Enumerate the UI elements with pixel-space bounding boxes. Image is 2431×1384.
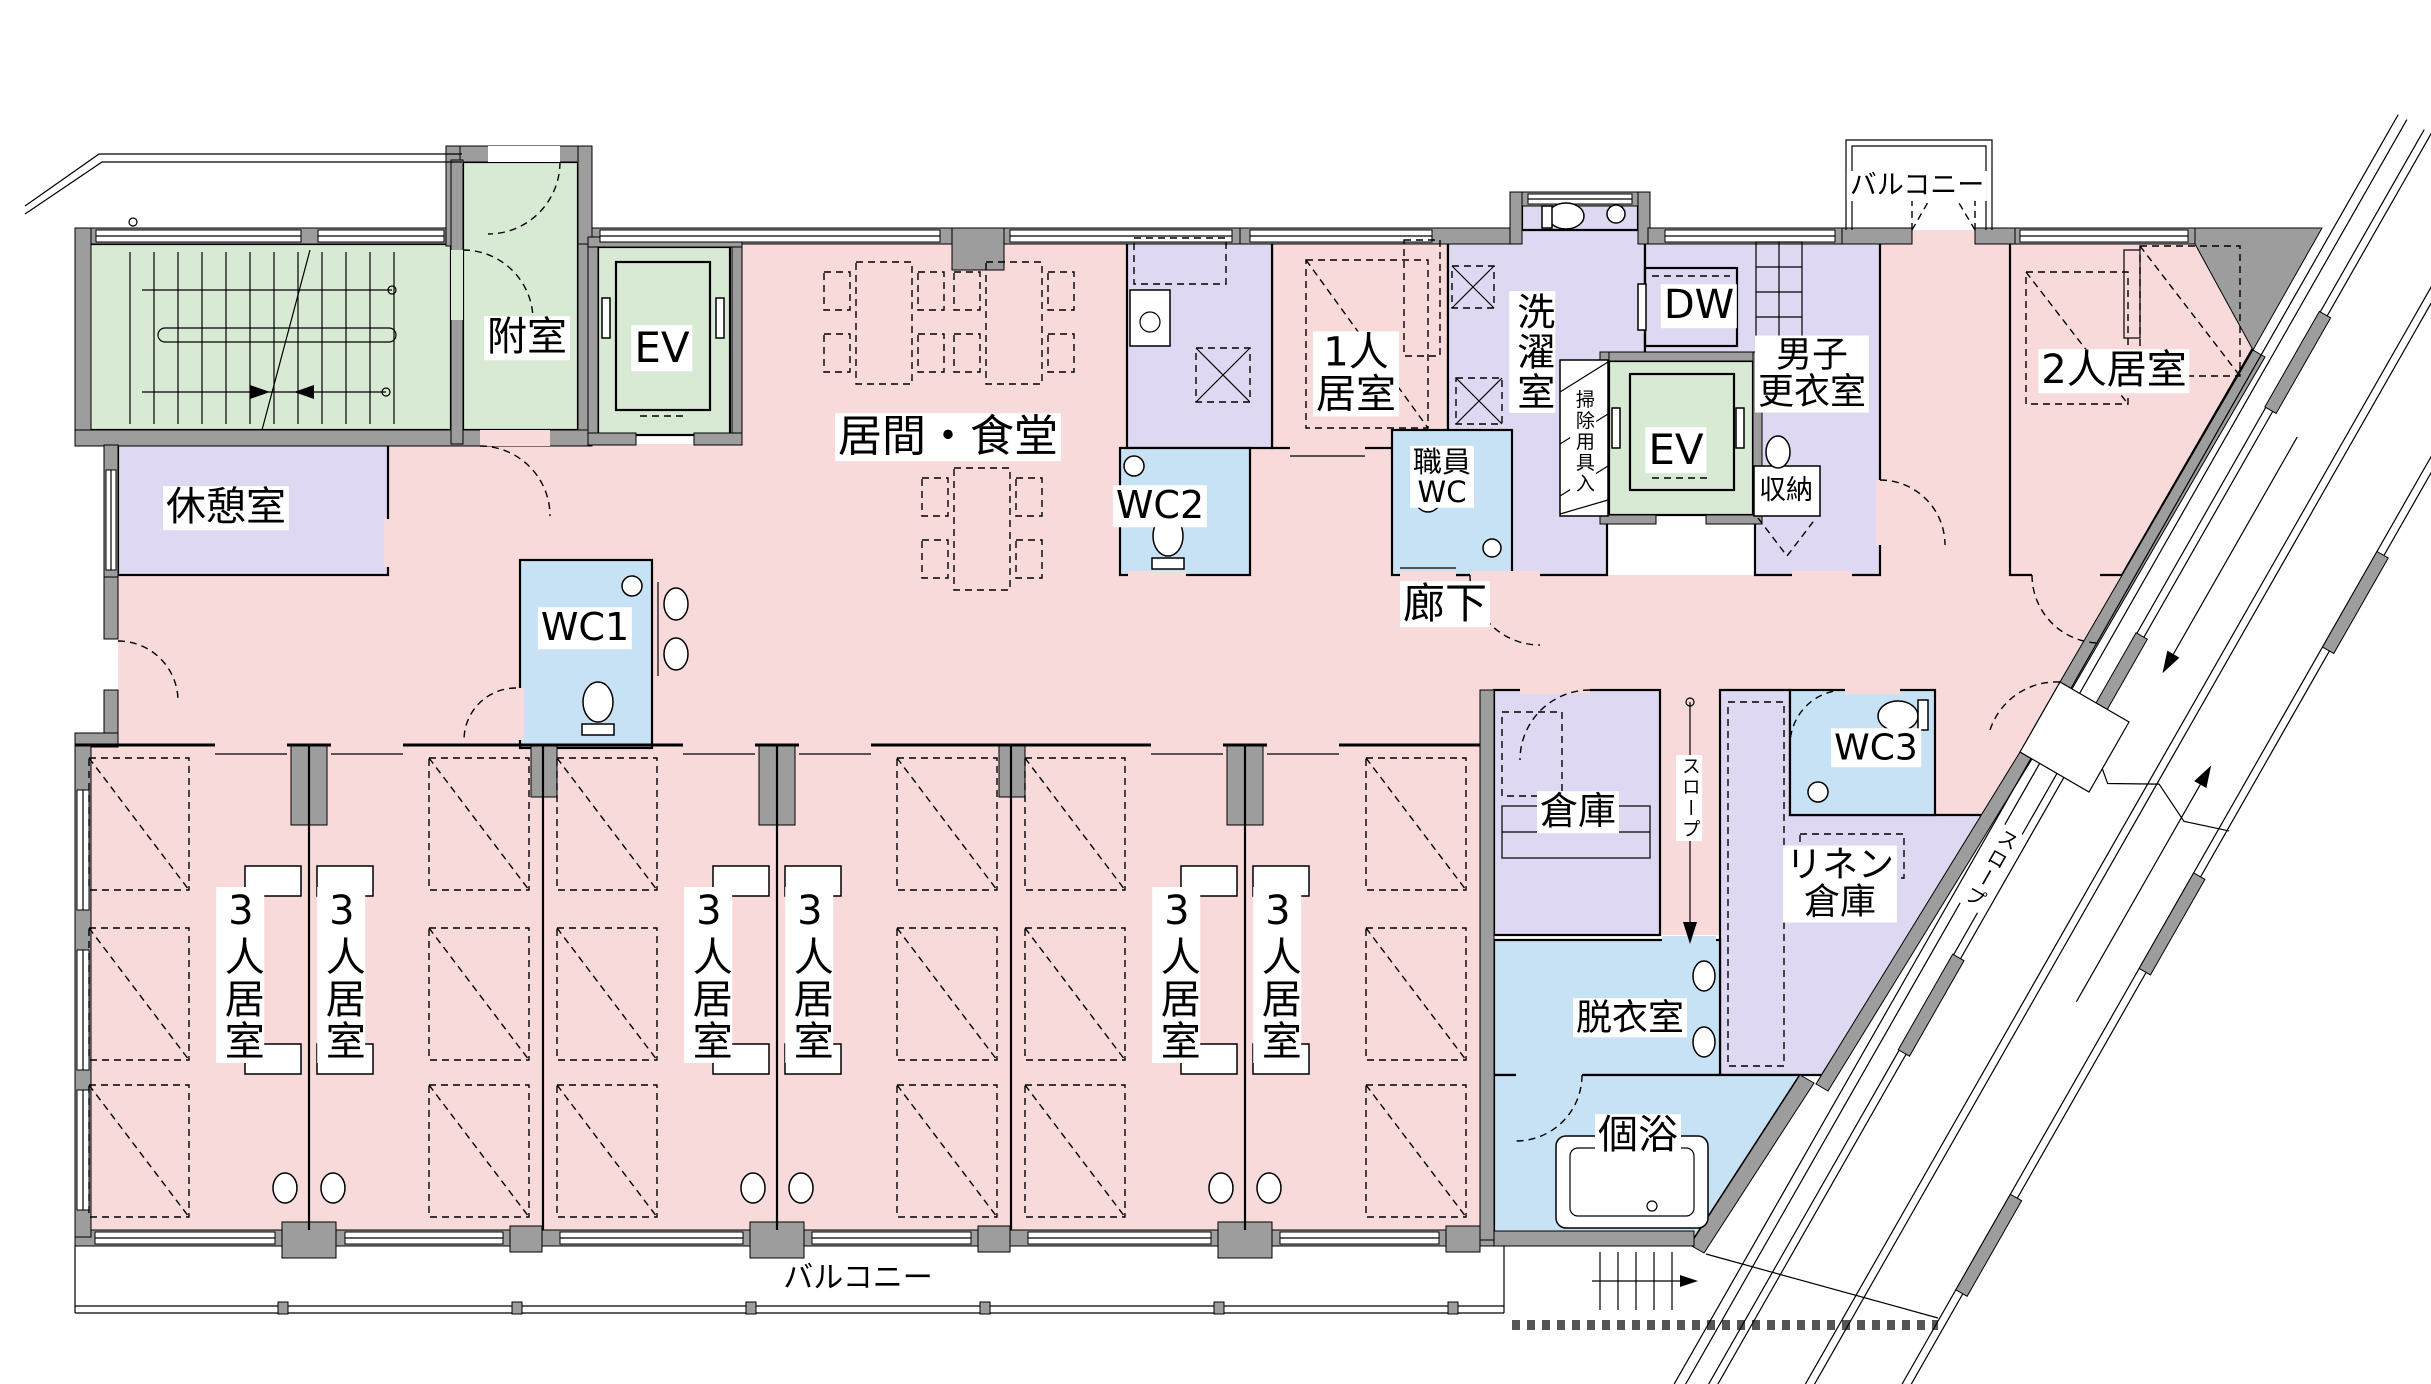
label-living-dining: 居間・食堂 [835, 413, 1061, 461]
label-room-3p-5: 3人居室 [1152, 887, 1200, 1063]
label-room-3p-3: 3人居室 [684, 887, 732, 1063]
label-room-3p-2: 3人居室 [317, 887, 365, 1063]
label-wc1: WC1 [538, 607, 632, 649]
label-slope-outer: スロープ [1956, 822, 2024, 913]
label-room-3p-4: 3人居室 [785, 887, 833, 1063]
label-room-1p: 1人 居室 [1313, 331, 1399, 416]
label-kyukeishitsu: 休憩室 [163, 486, 289, 530]
label-fushitsu: 附室 [484, 316, 570, 360]
label-balcony-north: バルコニー [1847, 171, 1987, 201]
floor-plan: 附室EV居間・食堂休憩室WC1WC21人 居室職員 WC洗濯室DW掃除用具入EV… [0, 0, 2431, 1384]
label-ev-west: EV [631, 325, 692, 371]
label-laundry: 洗濯室 [1509, 291, 1555, 413]
label-souko: 倉庫 [1537, 791, 1619, 833]
label-wc2: WC2 [1113, 485, 1207, 527]
label-shuno: 収納 [1756, 476, 1816, 506]
label-slope-inner: スロープ [1676, 755, 1702, 841]
label-cleaning-closet: 掃除用具入 [1570, 389, 1596, 496]
label-datsuishitsu: 脱衣室 [1573, 998, 1687, 1037]
label-staff-wc: 職員 WC [1410, 446, 1474, 508]
labels-layer: 附室EV居間・食堂休憩室WC1WC21人 居室職員 WC洗濯室DW掃除用具入EV… [0, 0, 2431, 1384]
label-room-2p: 2人居室 [2038, 349, 2189, 393]
label-linen-souko: リネン 倉庫 [1783, 846, 1897, 923]
label-room-3p-1: 3人居室 [216, 887, 264, 1063]
label-rouka: 廊下 [1400, 581, 1490, 627]
label-room-3p-6: 3人居室 [1253, 887, 1301, 1063]
label-dw: DW [1661, 284, 1737, 328]
label-koyoku: 個浴 [1595, 1114, 1681, 1158]
label-balcony-south: バルコニー [780, 1261, 935, 1294]
label-danshi-koishitsu: 男子 更衣室 [1755, 336, 1869, 413]
label-wc3: WC3 [1831, 728, 1921, 767]
label-ev-east: EV [1645, 427, 1706, 473]
